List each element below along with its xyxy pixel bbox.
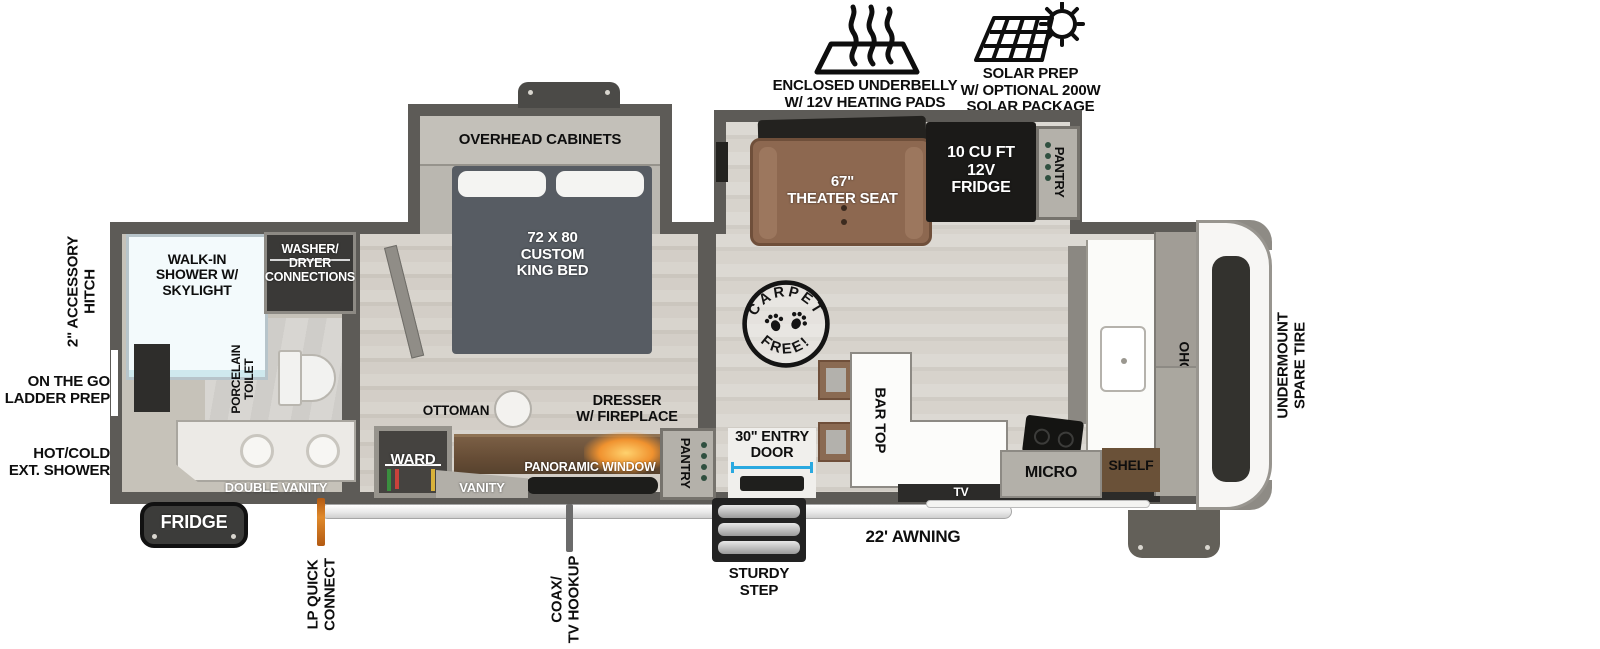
burner-2 (1057, 431, 1075, 449)
king-bed-label-line1: 72 X 80 (470, 230, 635, 247)
ladder-prep-strip (111, 350, 118, 416)
wardrobe-clothes-yellow (431, 469, 435, 491)
lp-quick-connect-line1: LP QUICK (306, 536, 323, 649)
wardrobe-clothes-red (395, 469, 399, 489)
rv-floorplan: ENCLOSED UNDERBELLY W/ 12V HEATING PADS … (0, 0, 1600, 649)
spare-tire-line1: UNDERMOUNT (1276, 291, 1293, 441)
step-tread-2 (718, 523, 800, 536)
entry-pantry-label: PANTRY (678, 429, 692, 497)
sturdy-step (712, 498, 806, 562)
kitchen-counter-side-band (1068, 246, 1086, 424)
washer-dryer-label: WASHER/ DRYER CONNECTIONS (262, 243, 358, 284)
awning-label: 22' AWNING (838, 528, 988, 547)
solar-label: SOLAR PREP W/ OPTIONAL 200W SOLAR PACKAG… (928, 66, 1133, 116)
wardrobe-label: WARD (378, 452, 448, 469)
washer-dryer-line3: CONNECTIONS (262, 271, 358, 285)
shower-label-line3: SKYLIGHT (131, 283, 263, 298)
sink-drain (1121, 358, 1127, 364)
slide-pantry-label: PANTRY (1052, 130, 1066, 214)
washer-dryer-line1: WASHER/ (262, 243, 358, 257)
bedroom-living-wall (698, 234, 716, 428)
enclosed-underbelly-icon (803, 4, 931, 76)
overhead-cabinets-label: OVERHEAD CABINETS (424, 132, 656, 149)
kitchen-sink (1100, 326, 1146, 392)
shelf-label: SHELF (1102, 458, 1160, 473)
entry-door-step (740, 476, 804, 491)
shower-label-line2: SHOWER W/ (131, 267, 263, 282)
coax-tv-hookup-line2: TV HOOKUP (566, 542, 583, 649)
ladder-prep-line1: ON THE GO (0, 374, 110, 391)
dresser-label: DRESSER W/ FIREPLACE (552, 394, 702, 426)
sun-icon (1049, 11, 1075, 37)
theater-seat-label: 67" THEATER SEAT (770, 174, 915, 207)
front-cap-window (1212, 256, 1250, 482)
sturdy-step-label: STURDY STEP (704, 566, 814, 599)
lp-quick-connect-line2: CONNECT (322, 536, 339, 649)
tv-label: TV (944, 486, 978, 499)
solar-label-line2: W/ OPTIONAL 200W (928, 83, 1133, 100)
theater-cupholder-2 (841, 219, 847, 225)
toilet-label: PORCELAIN TOILET (230, 327, 256, 431)
vanity-sink-right (306, 434, 340, 468)
ext-shower-line2: EXT. SHOWER (0, 463, 110, 480)
dresser-label-line2: W/ FIREPLACE (552, 410, 702, 426)
fridge-12v-line2: 12V (928, 162, 1034, 180)
toilet-label-line2: TOILET (243, 327, 256, 431)
fridge-12v-line3: FRIDGE (928, 179, 1034, 197)
fridge-12v-line1: 10 CU FT (928, 144, 1034, 162)
ext-shower-line1: HOT/COLD (0, 446, 110, 463)
ext-shower-label: HOT/COLD EXT. SHOWER (0, 446, 110, 479)
awning-trim-right (926, 500, 1150, 508)
spare-tire-line2: SPARE TIRE (1292, 291, 1309, 441)
solar-prep-icon (968, 2, 1088, 66)
panoramic-window-label: PANORAMIC WINDOW (510, 461, 670, 475)
ladder-prep-line2: LADDER PREP (0, 391, 110, 408)
slide-topper (518, 82, 620, 108)
entry-door-label-line1: 30" ENTRY (722, 430, 822, 446)
toilet-tank (278, 350, 302, 406)
entry-pantry-shelf-items (699, 437, 709, 486)
theater-slide-side-window (716, 142, 728, 182)
ottoman-label: OTTOMAN (406, 404, 506, 419)
entry-door-measure-tick-left (731, 462, 734, 473)
entry-door-label-line2: DOOR (722, 446, 822, 462)
bar-stool-upper (818, 360, 854, 400)
vanity-sink-left (240, 434, 274, 468)
sturdy-step-line1: STURDY (704, 566, 814, 583)
sturdy-step-line2: STEP (704, 583, 814, 600)
entry-door-measure-line (732, 466, 812, 469)
ladder-prep-label: ON THE GO LADDER PREP (0, 374, 110, 407)
front-cap-skirt (1128, 510, 1220, 558)
step-tread-3 (718, 541, 800, 554)
solar-label-line1: SOLAR PREP (928, 66, 1133, 83)
king-bed-label: 72 X 80 CUSTOM KING BED (470, 230, 635, 280)
coax-tv-hookup-label: COAX/ TV HOOKUP (550, 542, 583, 649)
bedroom-vanity-label: VANITY (444, 481, 520, 495)
panoramic-window (526, 477, 658, 494)
bar-stool-upper-seat (826, 368, 846, 392)
microwave-label: MICRO (1004, 464, 1098, 482)
bed-pillow-left (458, 171, 546, 197)
bar-stool-lower-seat (826, 430, 846, 454)
entry-door-measure-tick-right (810, 462, 813, 473)
carpet-free-stamp: CARPET FREE! (740, 278, 832, 370)
theater-seat-label-line1: 67" (770, 174, 915, 191)
accessory-hitch-line1: 2" ACCESSORY (66, 207, 83, 377)
bed-pillow-right (556, 171, 644, 197)
entry-door-label: 30" ENTRY DOOR (722, 430, 822, 462)
bar-top-counter-horizontal (910, 420, 1008, 488)
lp-quick-connect-label: LP QUICK CONNECT (306, 536, 339, 649)
spare-tire-label: UNDERMOUNT SPARE TIRE (1276, 291, 1309, 441)
theater-seat-label-line2: THEATER SEAT (770, 191, 915, 208)
dresser-label-line1: DRESSER (552, 394, 702, 410)
bar-top-label: BAR TOP (871, 365, 888, 475)
shower-label-line1: WALK-IN (131, 252, 263, 267)
exterior-fridge-label: FRIDGE (146, 513, 242, 533)
bar-stool-lower (818, 422, 854, 462)
fridge-12v-label: 10 CU FT 12V FRIDGE (928, 144, 1034, 197)
burner-1 (1033, 428, 1051, 446)
king-bed-label-line2: CUSTOM (470, 247, 635, 264)
king-bed-label-line3: KING BED (470, 263, 635, 280)
accessory-hitch-label: 2" ACCESSORY HITCH (66, 207, 99, 377)
shower-label: WALK-IN SHOWER W/ SKYLIGHT (131, 252, 263, 298)
wardrobe-clothes-green (387, 469, 391, 491)
bathroom-tv (134, 344, 170, 412)
washer-dryer-line2: DRYER (262, 257, 358, 271)
awning-rail (320, 504, 1012, 519)
step-tread-1 (718, 505, 800, 518)
double-vanity-label: DOUBLE VANITY (196, 481, 356, 495)
coax-tv-hookup-line1: COAX/ (550, 542, 567, 649)
accessory-hitch-line2: HITCH (82, 207, 99, 377)
